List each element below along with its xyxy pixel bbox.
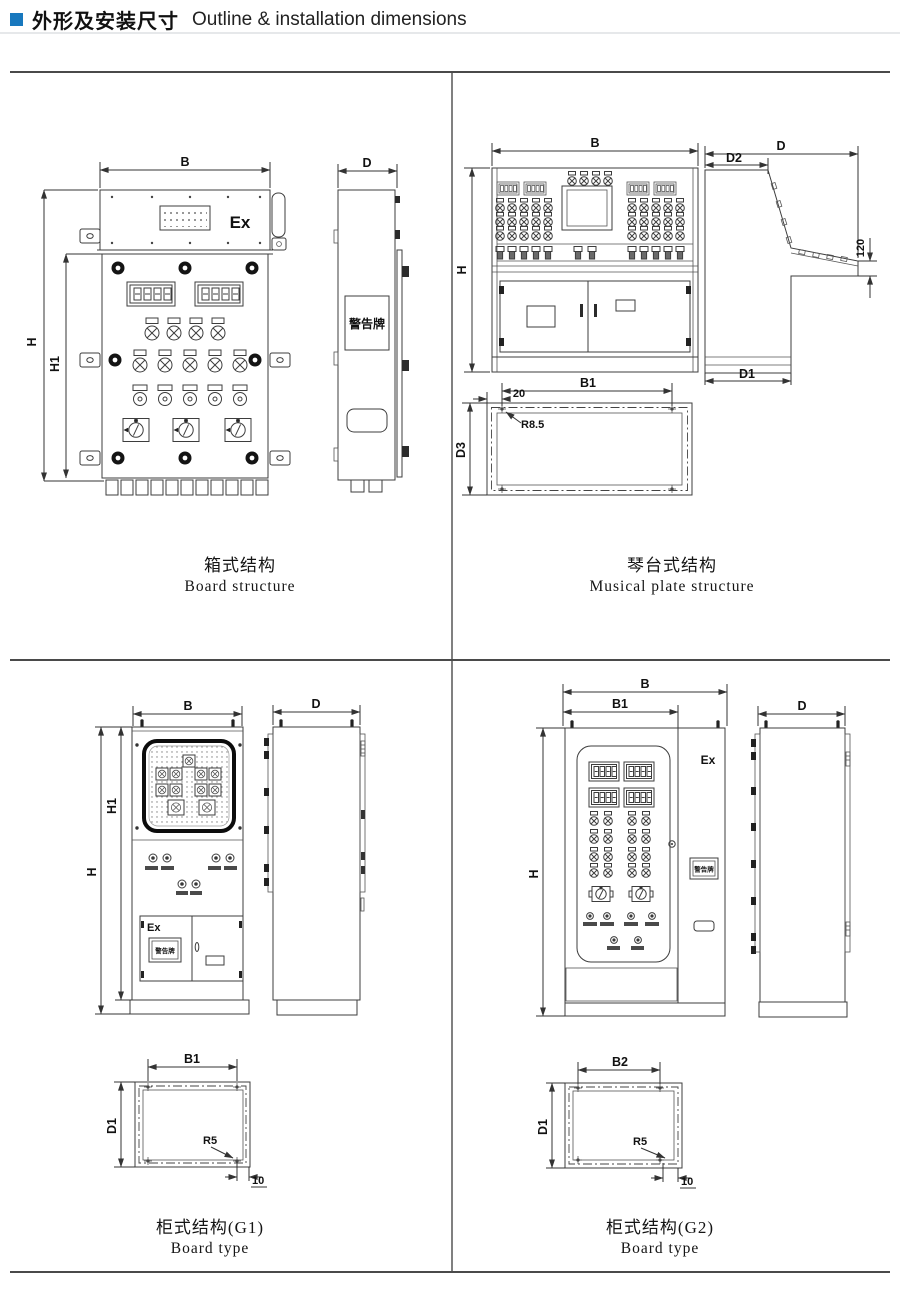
g2-warning-plate: 警告牌 xyxy=(690,858,718,879)
caption-zh: 琴台式结构 xyxy=(540,551,804,576)
cable-glands xyxy=(106,480,268,495)
console-dim-holespan-label: B1 xyxy=(580,376,596,390)
g1-warning-plate-text: 警告牌 xyxy=(155,946,175,955)
warning-plate: 警告牌 xyxy=(345,296,389,350)
g2-side-view: D xyxy=(751,699,850,1017)
g1-front-view: B xyxy=(85,699,249,1014)
g2-dim-width1-label: B1 xyxy=(612,697,628,711)
caption-zh: 柜式结构(G2) xyxy=(540,1213,780,1238)
caption-en: Board type xyxy=(90,1240,330,1258)
box-side-view: D 警告牌 xyxy=(334,156,409,492)
g1-latches xyxy=(361,741,365,911)
indicator-lamp-row1 xyxy=(145,318,225,340)
g2-side-handle xyxy=(694,921,714,931)
box-dim-width-label: B xyxy=(180,155,189,169)
g1-dim-width-label: B xyxy=(183,699,192,713)
g2-warning-plate-text: 警告牌 xyxy=(694,865,714,874)
box-ex-marking: Ex xyxy=(230,213,251,232)
console-lamp-grid-right xyxy=(628,199,685,241)
digital-display xyxy=(589,762,619,781)
g1-panel-buttons xyxy=(145,854,237,895)
caption-console-structure: 琴台式结构 Musical plate structure xyxy=(540,551,804,596)
g2-buttons xyxy=(583,913,659,950)
warning-plate-text: 警告牌 xyxy=(348,316,385,331)
caption-en: Board type xyxy=(540,1240,780,1258)
g1-window xyxy=(135,741,241,831)
g2-front-view: B B1 Ex xyxy=(527,677,727,1016)
g1-dim-holespan-label: B1 xyxy=(184,1052,200,1066)
digital-display xyxy=(624,762,654,781)
hinge-capsule xyxy=(272,193,286,250)
g1-side-view: D xyxy=(264,697,365,1015)
g1-doors: Ex 警告牌 xyxy=(140,916,243,981)
digital-display xyxy=(195,282,243,306)
g2-plan-view: B2 D1 R5 10 xyxy=(536,1055,696,1188)
digital-display xyxy=(497,182,519,195)
g2-lamp-grid xyxy=(590,812,651,878)
g1-dim-offset-label: 10 xyxy=(252,1175,264,1187)
caption-zh: 柜式结构(G1) xyxy=(90,1213,330,1238)
caption-g2-structure: 柜式结构(G2) Board type xyxy=(540,1213,780,1258)
console-corner-radius-label: R8.5 xyxy=(521,419,544,431)
caption-en: Board structure xyxy=(110,578,370,596)
console-plan-view: B1 20 R8.5 D3 xyxy=(454,376,692,495)
box-dim-height1-label: H1 xyxy=(48,356,62,372)
caption-box-structure: 箱式结构 Board structure xyxy=(110,551,370,596)
indicator-lamp-row2 xyxy=(133,350,247,372)
side-pocket xyxy=(347,409,387,432)
digital-display xyxy=(127,282,175,306)
panel-knobs-top xyxy=(112,262,259,275)
console-dim-offset-label: 20 xyxy=(513,388,525,400)
g1-dim-height-label: H xyxy=(85,867,99,876)
g2-rotary-switches xyxy=(589,887,653,902)
console-dim-drop-label: 120 xyxy=(855,239,867,257)
console-dim-top-depth-label: D2 xyxy=(726,151,742,165)
console-dim-depth-label: D xyxy=(776,139,785,153)
g2-dim-plan-depth-label: D1 xyxy=(536,1119,550,1135)
digital-display xyxy=(624,788,654,807)
caption-g1-structure: 柜式结构(G1) Board type xyxy=(90,1213,330,1258)
g2-dim-offset-label: 10 xyxy=(681,1176,693,1188)
button-row xyxy=(133,385,247,406)
box-dim-height-label: H xyxy=(25,337,39,346)
console-screen xyxy=(562,186,612,230)
slope-switch-tabs xyxy=(771,183,847,262)
g2-dim-width-label: B xyxy=(640,677,649,691)
console-dim-width-label: B xyxy=(590,136,599,150)
console-dim-base-depth-label: D1 xyxy=(739,367,755,381)
digital-display xyxy=(524,182,546,195)
console-dim-height-label: H xyxy=(455,265,469,274)
g1-dim-plan-depth-label: D1 xyxy=(105,1118,119,1134)
g2-ex-marking: Ex xyxy=(701,753,716,767)
digital-display xyxy=(589,788,619,807)
g2-corner-radius-label: R5 xyxy=(633,1136,647,1148)
g1-plan-view: B1 D1 R5 10 xyxy=(105,1052,267,1187)
terminal-plate xyxy=(160,206,210,230)
box-front-view: B Ex xyxy=(25,155,290,495)
console-front-view: B xyxy=(455,136,698,372)
panel-knobs-bottom xyxy=(112,452,259,465)
console-side-view: D D2 120 D1 xyxy=(705,139,877,385)
g2-latches xyxy=(846,752,850,936)
g1-corner-radius-label: R5 xyxy=(203,1135,217,1147)
g2-dim-holespan-label: B2 xyxy=(612,1055,628,1069)
console-top-lamps xyxy=(568,172,613,186)
digital-display xyxy=(654,182,676,195)
caption-zh: 箱式结构 xyxy=(110,551,370,576)
drawings-canvas: B Ex xyxy=(0,0,900,1291)
console-dim-plan-depth-label: D3 xyxy=(454,442,468,458)
box-dim-depth-label: D xyxy=(362,156,371,170)
g1-warning-plate: 警告牌 xyxy=(149,938,181,962)
g2-dim-depth-label: D xyxy=(797,699,806,713)
g1-ex-marking: Ex xyxy=(147,922,161,934)
digital-display xyxy=(627,182,649,195)
g1-dim-height1-label: H1 xyxy=(105,798,119,814)
console-doors xyxy=(499,281,691,352)
g2-dim-height-label: H xyxy=(527,869,541,878)
caption-en: Musical plate structure xyxy=(540,578,804,596)
console-toggle-row xyxy=(496,247,684,260)
catalog-page: 外形及安装尺寸 Outline & installation dimension… xyxy=(0,0,900,1291)
rotary-switches xyxy=(123,419,251,442)
console-lamp-grid-left xyxy=(496,199,553,241)
g1-dim-depth-label: D xyxy=(311,697,320,711)
